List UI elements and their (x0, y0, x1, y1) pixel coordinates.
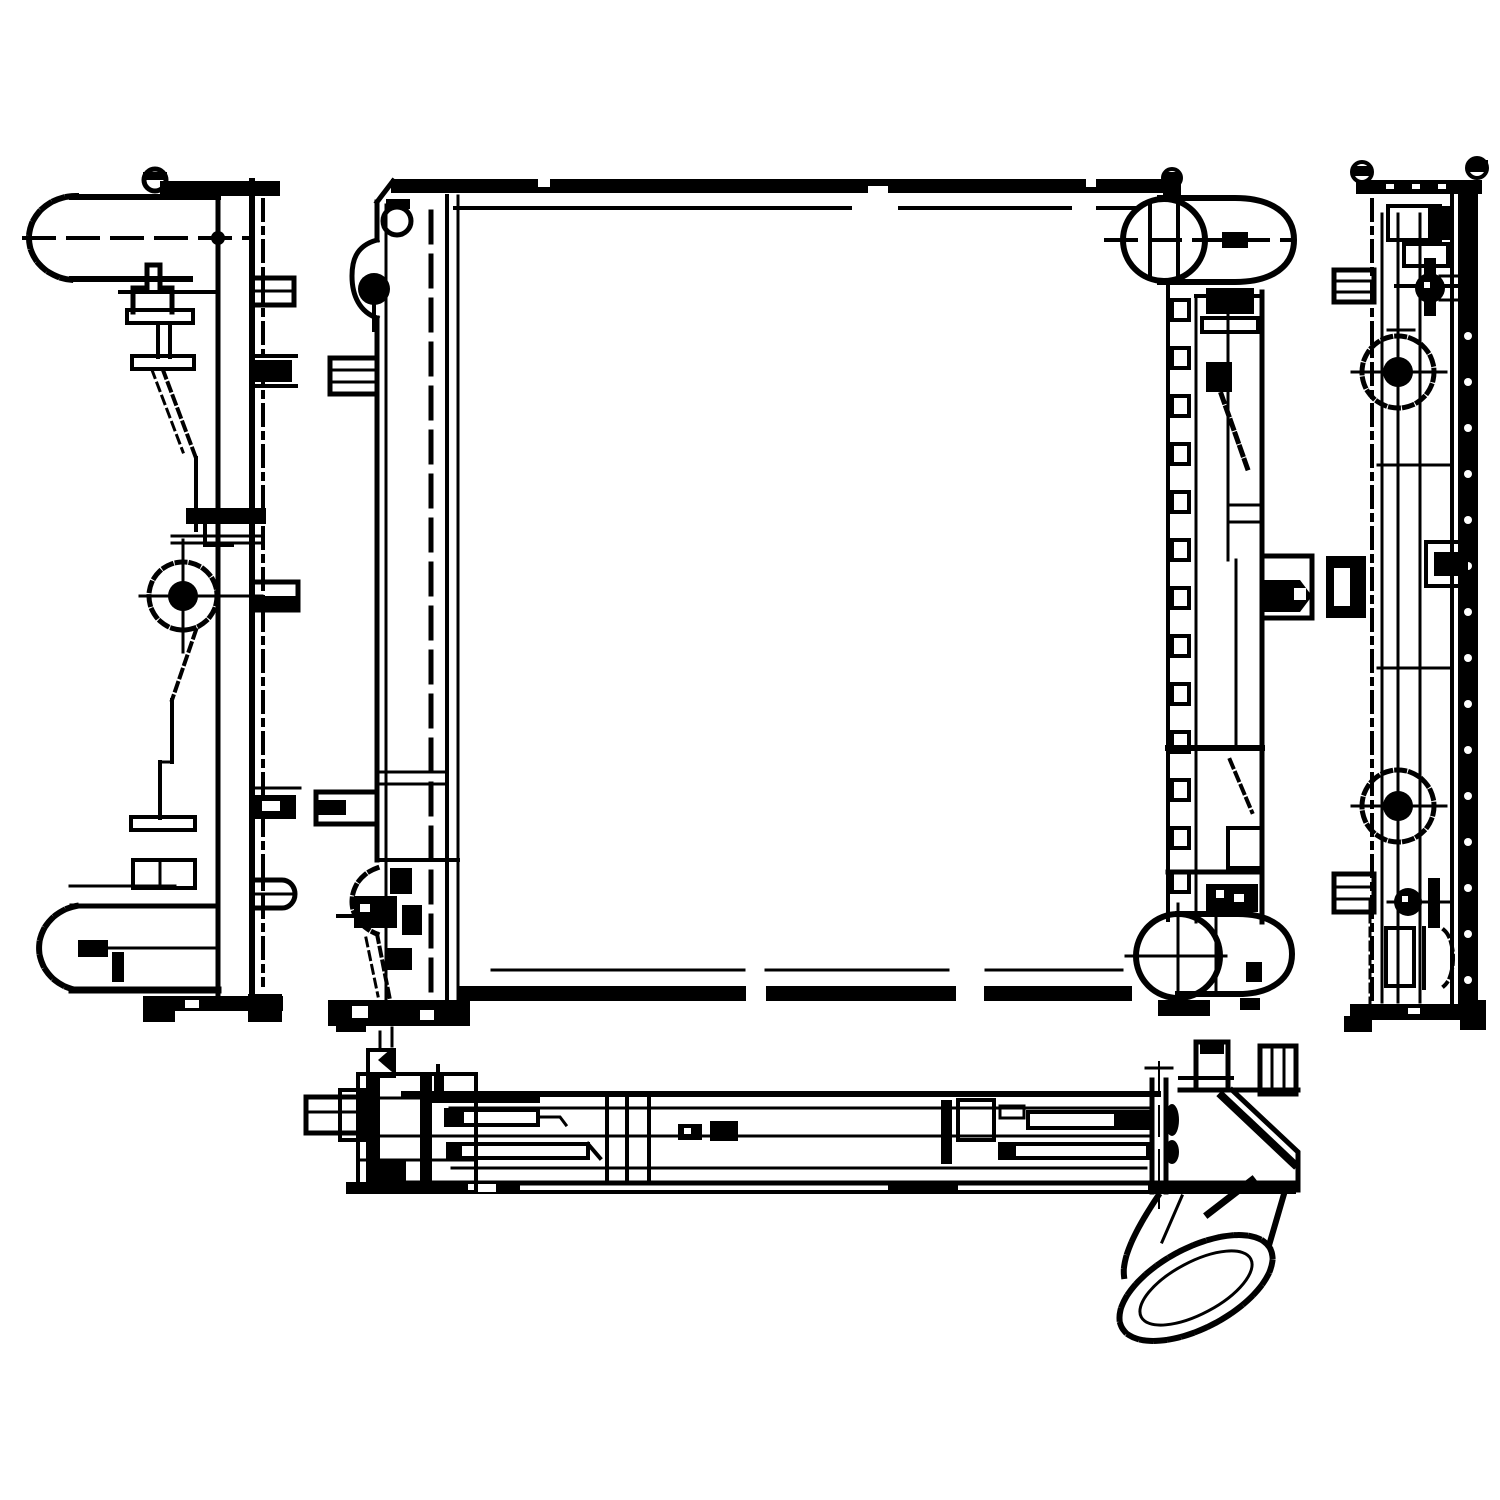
left-profile-brackets (127, 265, 266, 545)
bottom-tank-edge (458, 970, 1132, 1001)
top-tank-edge (377, 179, 1177, 208)
radiator-technical-drawing (0, 0, 1500, 1500)
outlet-pipe (1126, 904, 1292, 1016)
left-side-tank (316, 196, 470, 1032)
bottom-view (306, 1028, 1298, 1363)
right-mid-bracket (1262, 556, 1312, 618)
upper-left-tab (1334, 270, 1374, 302)
mounting-boss (140, 540, 262, 652)
lower-left-tab (1334, 874, 1374, 912)
left-side-view (24, 169, 300, 1022)
outlet-elbow (1103, 1042, 1298, 1363)
mounting-boss-upper (1352, 320, 1446, 440)
mounting-boss-lower (1352, 754, 1446, 870)
riveted-frame-rail (1458, 192, 1478, 1010)
mounting-tabs-right (252, 278, 300, 908)
slot-rail (1172, 300, 1189, 892)
base-foot (143, 994, 283, 1022)
right-side-view (1326, 158, 1488, 1032)
elbow-pipe (1103, 1194, 1289, 1363)
right-slot-bars (941, 1100, 1148, 1164)
right-side-tank (1168, 282, 1312, 922)
drawing-sheet (0, 0, 1500, 1500)
lower-hose-pipe (39, 906, 218, 990)
base-foot (1344, 1000, 1486, 1032)
slot-bars (446, 1110, 600, 1158)
front-view (316, 169, 1312, 1032)
